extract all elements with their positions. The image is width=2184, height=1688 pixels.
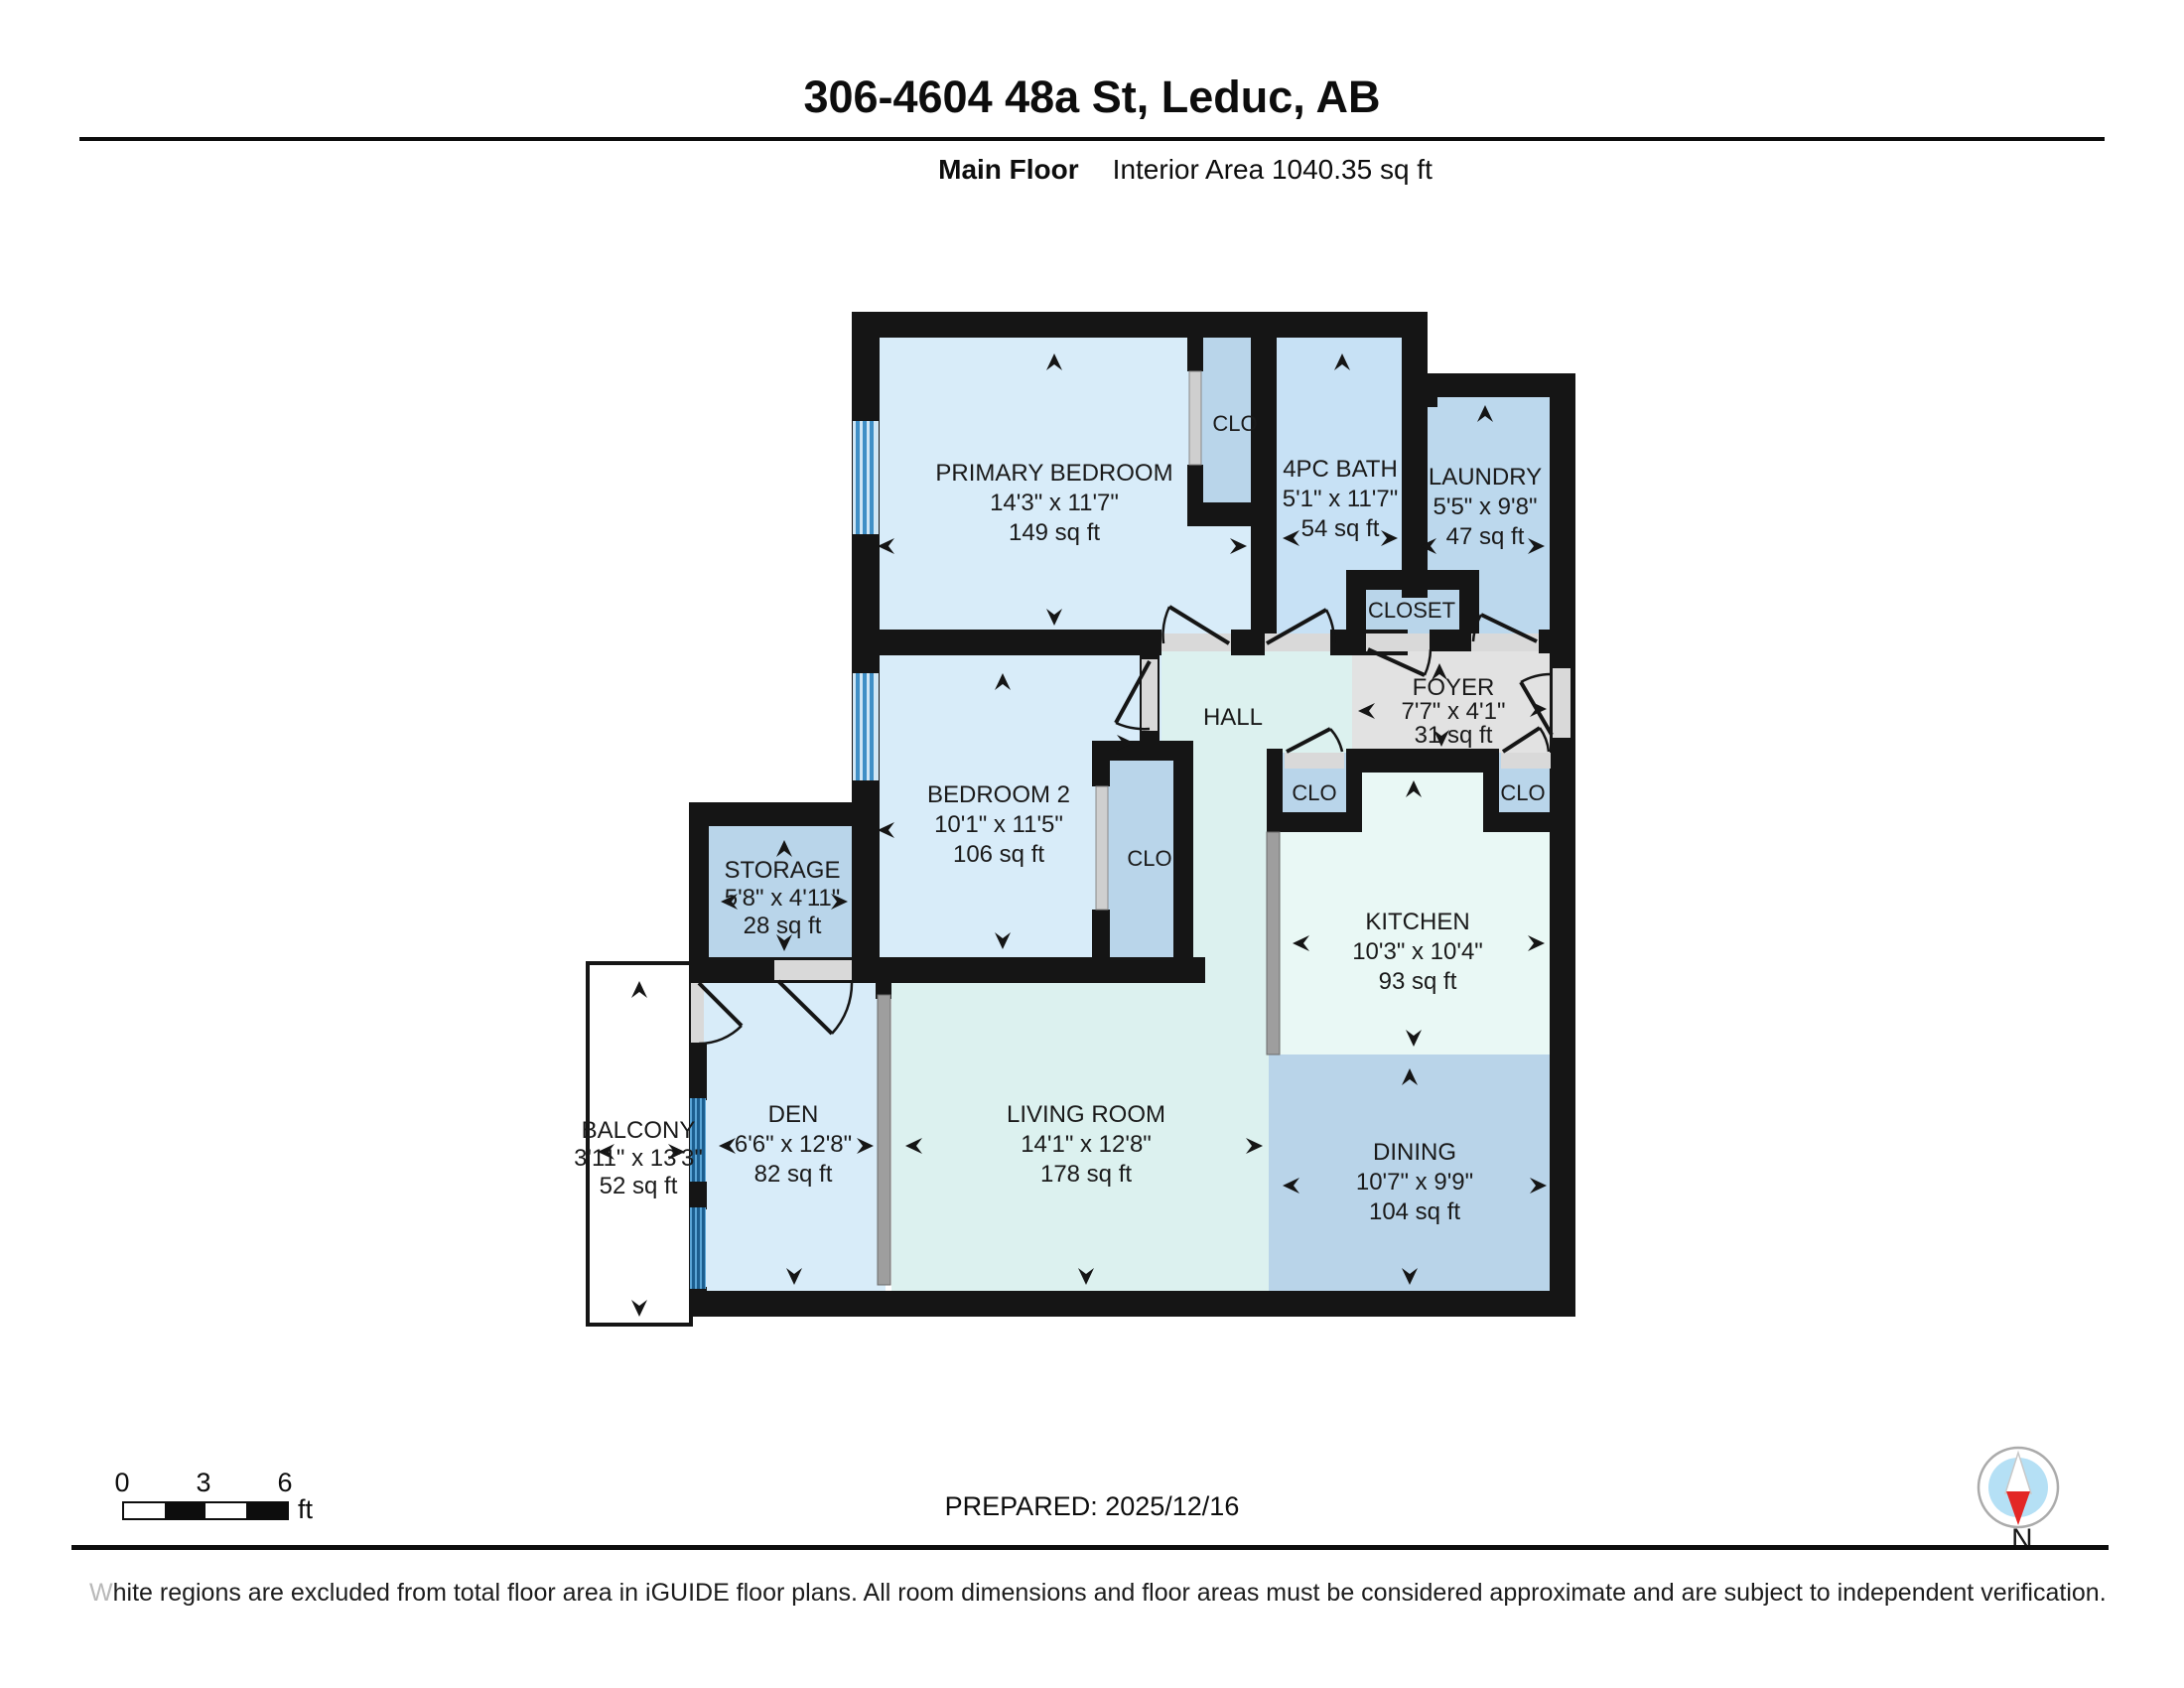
svg-text:3'11" x 13'3": 3'11" x 13'3" [574,1145,703,1172]
svg-text:LIVING ROOM: LIVING ROOM [1007,1101,1165,1128]
room-label-foyer: FOYER 7'7" x 4'1" 31 sq ft [1402,674,1506,749]
floor-subtitle: Main FloorInterior Area 1040.35 sq ft [938,154,1433,186]
svg-text:52 sq ft: 52 sq ft [600,1173,678,1199]
footer-disclaimer: White regions are excluded from total fl… [89,1579,2115,1608]
title-divider [79,137,2105,141]
svg-text:14'3" x 11'7": 14'3" x 11'7" [990,490,1119,516]
scale-tick-6: 6 [277,1468,292,1498]
svg-text:5'1" x 11'7": 5'1" x 11'7" [1283,486,1399,512]
svg-text:82 sq ft: 82 sq ft [754,1161,833,1188]
svg-text:BALCONY: BALCONY [582,1117,696,1144]
compass: N [1976,1442,2065,1551]
svg-text:FOYER: FOYER [1413,674,1495,701]
svg-text:LAUNDRY: LAUNDRY [1429,464,1542,491]
svg-text:5'8" x 4'11": 5'8" x 4'11" [725,885,841,912]
svg-text:14'1" x 12'8": 14'1" x 12'8" [1021,1131,1152,1158]
page-title: 306-4604 48a St, Leduc, AB [0,71,2184,123]
disclaimer-body: hite regions are excluded from total flo… [113,1579,2107,1607]
svg-text:7'7" x 4'1": 7'7" x 4'1" [1402,698,1506,725]
svg-text:STORAGE: STORAGE [725,857,841,884]
svg-text:10'1" x 11'5": 10'1" x 11'5" [934,811,1063,838]
scale-tick-3: 3 [196,1468,210,1498]
bedroom2-window [853,673,879,780]
scale-bar [122,1501,289,1520]
svg-text:KITCHEN: KITCHEN [1365,909,1469,935]
floor-label: Main Floor [938,154,1079,185]
svg-text:BEDROOM 2: BEDROOM 2 [927,781,1070,808]
floor-plan-page: 306-4604 48a St, Leduc, AB Main FloorInt… [0,0,2184,1688]
room-label-kitchen-clo-right: CLO [1500,780,1545,805]
hall-corridor-floor [1193,749,1269,983]
svg-text:28 sq ft: 28 sq ft [744,913,822,939]
prepared-date: PREPARED: 2025/12/16 [945,1491,1240,1522]
svg-text:54 sq ft: 54 sq ft [1301,515,1380,542]
footer-divider [71,1545,2109,1550]
svg-text:4PC BATH: 4PC BATH [1283,456,1398,483]
svg-text:106 sq ft: 106 sq ft [953,841,1044,868]
disclaimer-lead: W [89,1579,113,1607]
svg-text:5'5" x 9'8": 5'5" x 9'8" [1433,493,1538,520]
svg-text:149 sq ft: 149 sq ft [1009,519,1100,546]
svg-text:93 sq ft: 93 sq ft [1379,968,1457,995]
primary-bedroom-window [853,421,879,534]
room-label-hall: HALL [1203,704,1263,731]
hall-floor [1148,641,1352,757]
scale-tick-0: 0 [114,1468,129,1498]
svg-text:104 sq ft: 104 sq ft [1369,1198,1460,1225]
svg-text:DINING: DINING [1373,1139,1456,1166]
svg-text:6'6" x 12'8": 6'6" x 12'8" [735,1131,852,1158]
scale-unit: ft [298,1494,313,1525]
interior-area-label: Interior Area 1040.35 sq ft [1113,154,1433,185]
room-label-kitchen-clo-left: CLO [1292,780,1336,805]
svg-text:10'7" x 9'9": 10'7" x 9'9" [1356,1169,1473,1196]
svg-text:10'3" x 10'4": 10'3" x 10'4" [1352,938,1483,965]
svg-text:178 sq ft: 178 sq ft [1040,1161,1132,1188]
svg-text:31 sq ft: 31 sq ft [1415,722,1493,749]
den-window-lower [690,1207,706,1289]
svg-text:47 sq ft: 47 sq ft [1446,523,1525,550]
svg-text:DEN: DEN [768,1101,819,1128]
floor-plan-drawing: PRIMARY BEDROOM 14'3" x 11'7" 149 sq ft … [556,298,1608,1360]
balcony-outline [588,963,691,1325]
room-label-dining: DINING 10'7" x 9'9" 104 sq ft [1356,1139,1473,1225]
room-label-primary-clo: CLO [1212,411,1257,436]
room-label-closet: CLOSET [1368,598,1455,623]
svg-text:PRIMARY BEDROOM: PRIMARY BEDROOM [935,460,1172,487]
room-label-bedroom2-clo: CLO [1127,846,1171,871]
